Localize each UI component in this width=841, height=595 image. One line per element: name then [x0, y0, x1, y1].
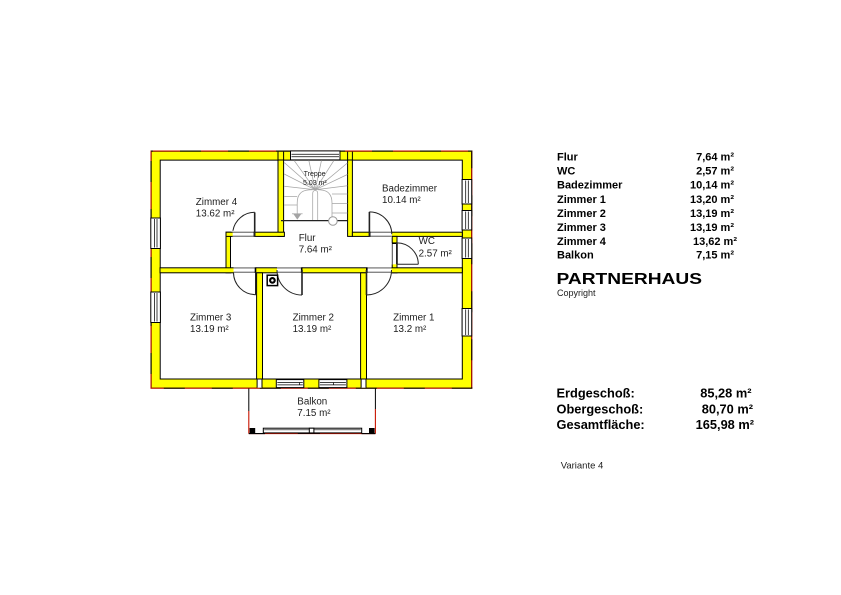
svg-text:Copyright: Copyright: [557, 288, 596, 298]
svg-text:7,15 m²: 7,15 m²: [696, 250, 734, 262]
svg-text:10,14 m²: 10,14 m²: [690, 180, 734, 192]
svg-text:Flur: Flur: [299, 233, 317, 244]
svg-text:13.19 m²: 13.19 m²: [293, 324, 332, 335]
svg-text:Badezimmer: Badezimmer: [557, 180, 623, 192]
svg-text:13.62 m²: 13.62 m²: [196, 208, 235, 219]
svg-text:Zimmer 2: Zimmer 2: [293, 312, 334, 323]
svg-text:Zimmer 4: Zimmer 4: [196, 197, 238, 208]
svg-text:Erdgeschoß:: Erdgeschoß:: [557, 386, 635, 401]
svg-text:PARTNERHAUS: PARTNERHAUS: [557, 271, 703, 288]
svg-text:Flur: Flur: [557, 152, 578, 164]
svg-text:Badezimmer: Badezimmer: [382, 183, 438, 194]
svg-text:Obergeschoß:: Obergeschoß:: [557, 401, 644, 416]
svg-text:Zimmer 1: Zimmer 1: [557, 194, 606, 206]
svg-text:Zimmer 3: Zimmer 3: [190, 312, 232, 323]
svg-text:Zimmer 4: Zimmer 4: [557, 236, 607, 248]
svg-text:Balkon: Balkon: [557, 250, 594, 262]
svg-text:5.03 m²: 5.03 m²: [303, 180, 327, 187]
svg-text:13,20 m²: 13,20 m²: [690, 194, 734, 206]
svg-text:13,19 m²: 13,19 m²: [690, 222, 734, 234]
svg-text:10.14 m²: 10.14 m²: [382, 195, 421, 206]
svg-text:WC: WC: [419, 236, 435, 247]
svg-text:85,28 m²: 85,28 m²: [700, 386, 751, 401]
svg-text:Variante 4: Variante 4: [561, 461, 604, 472]
svg-text:13,62 m²: 13,62 m²: [693, 236, 737, 248]
svg-text:2,57 m²: 2,57 m²: [696, 166, 734, 178]
svg-text:7.15 m²: 7.15 m²: [297, 408, 331, 419]
svg-text:7.64 m²: 7.64 m²: [299, 245, 333, 256]
svg-text:Zimmer 2: Zimmer 2: [557, 208, 606, 220]
svg-text:13,19 m²: 13,19 m²: [690, 208, 734, 220]
svg-text:7,64 m²: 7,64 m²: [696, 152, 734, 164]
svg-text:Zimmer 3: Zimmer 3: [557, 222, 606, 234]
svg-text:Zimmer 1: Zimmer 1: [393, 312, 434, 323]
svg-text:13.2 m²: 13.2 m²: [393, 324, 427, 335]
svg-text:Balkon: Balkon: [297, 397, 327, 408]
svg-text:13.19 m²: 13.19 m²: [190, 324, 229, 335]
svg-text:165,98 m²: 165,98 m²: [696, 417, 754, 432]
svg-text:Treppe: Treppe: [304, 171, 326, 178]
svg-text:WC: WC: [557, 166, 575, 178]
svg-text:Gesamtfläche:: Gesamtfläche:: [557, 417, 645, 432]
svg-text:2.57 m²: 2.57 m²: [419, 248, 453, 259]
svg-text:80,70 m²: 80,70 m²: [702, 401, 753, 416]
